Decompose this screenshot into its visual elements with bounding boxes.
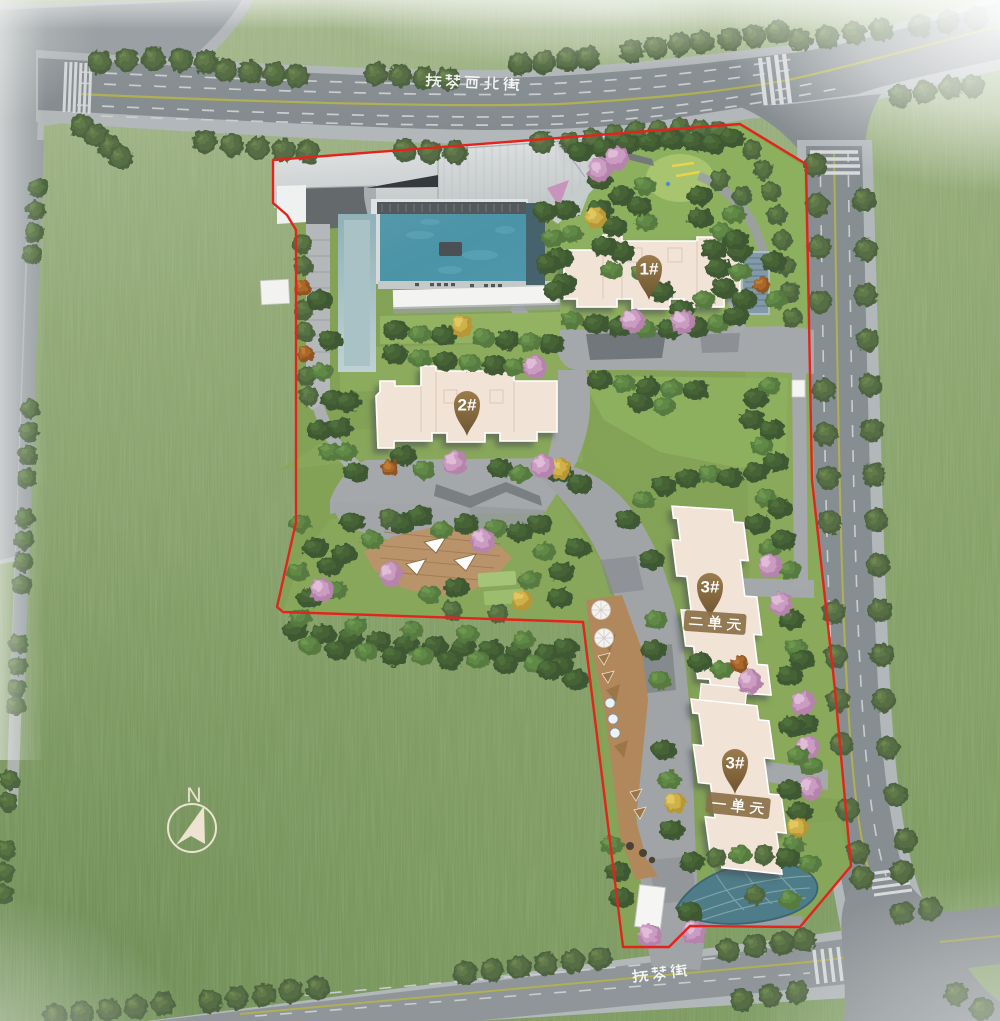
svg-text:3#: 3# (726, 754, 745, 773)
svg-text:1#: 1# (640, 260, 659, 279)
svg-text:2#: 2# (458, 396, 477, 415)
svg-text:N: N (186, 784, 201, 807)
svg-text:3#: 3# (701, 578, 720, 597)
